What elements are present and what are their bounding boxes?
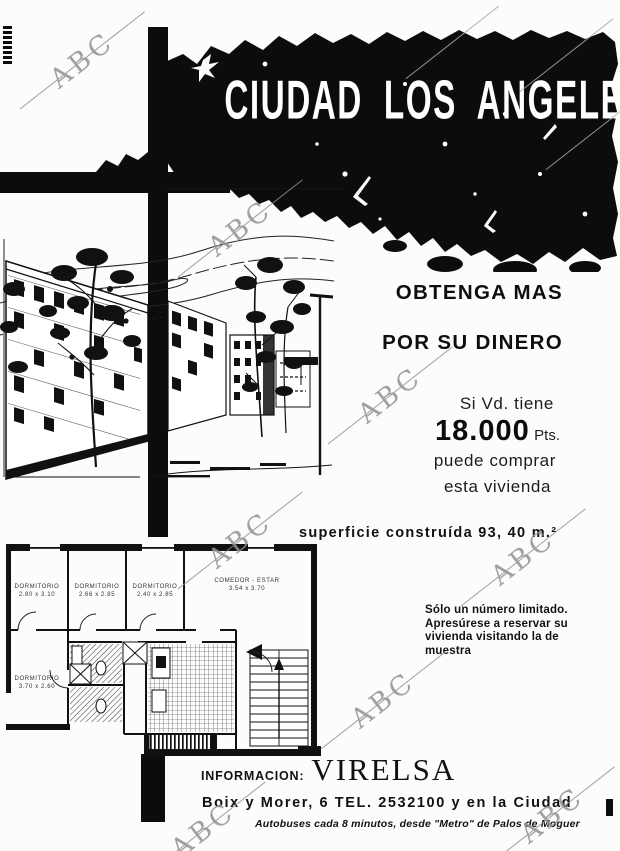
floor-plan: DORMITORIO2.80 x 3.10 DORMITORIO2.66 x 2… bbox=[6, 530, 321, 758]
abc-watermark: ABC bbox=[4, 0, 159, 130]
building-right bbox=[230, 335, 310, 415]
svg-text:COMEDOR - ESTAR: COMEDOR - ESTAR bbox=[214, 578, 279, 584]
company-name: VIRELSA bbox=[311, 752, 456, 788]
pitch-line-2: POR SU DINERO bbox=[382, 331, 563, 355]
terrace-railing bbox=[149, 734, 212, 750]
building-left bbox=[6, 261, 148, 479]
building-middle bbox=[168, 301, 226, 431]
svg-text:DORMITORIO: DORMITORIO bbox=[15, 676, 60, 682]
pitch-line-1: OBTENGA MAS bbox=[396, 281, 563, 305]
edge-mark-bottom-right bbox=[606, 799, 613, 816]
transport-note: Autobuses cada 8 minutos, desde "Metro" … bbox=[255, 818, 580, 830]
sketch-top-rule bbox=[163, 188, 343, 190]
foliage-spill bbox=[88, 146, 150, 194]
limited-offer-note: Sólo un número limitado. Apresúrese a re… bbox=[425, 604, 579, 658]
room-labels: DORMITORIO2.80 x 3.10 DORMITORIO2.66 x 2… bbox=[15, 578, 280, 690]
offer-line-3: esta vivienda bbox=[444, 477, 551, 497]
svg-text:DORMITORIO: DORMITORIO bbox=[15, 584, 60, 590]
surface-area-note: superficie construída 93, 40 m.² bbox=[299, 525, 557, 541]
svg-text:DORMITORIO: DORMITORIO bbox=[133, 584, 178, 590]
svg-text:DORMITORIO: DORMITORIO bbox=[75, 584, 120, 590]
contact-address: Boix y Morer, 6 TEL. 2532100 y en la Ciu… bbox=[202, 795, 572, 811]
price-currency: Pts. bbox=[534, 427, 560, 444]
svg-text:2.66 x 2.85: 2.66 x 2.85 bbox=[79, 592, 115, 598]
staircase bbox=[250, 650, 308, 746]
svg-text:3.54 x 3.70: 3.54 x 3.70 bbox=[229, 586, 265, 592]
edge-mark-top-left bbox=[3, 26, 12, 66]
information-label: INFORMACION: bbox=[201, 769, 304, 783]
offer-price: 18.000 Pts. bbox=[435, 415, 560, 448]
contact-row: INFORMACION: VIRELSA bbox=[201, 752, 456, 788]
advertisement-page: CIUDAD LOS ANGELES bbox=[0, 0, 620, 851]
offer-line-2: puede comprar bbox=[434, 451, 556, 471]
buildings-sketch bbox=[0, 225, 335, 487]
svg-text:2.40 x 2.85: 2.40 x 2.85 bbox=[137, 592, 173, 598]
offer-intro: Si Vd. tiene bbox=[460, 394, 554, 414]
svg-text:2.80 x 3.10: 2.80 x 3.10 bbox=[19, 592, 55, 598]
price-amount: 18.000 bbox=[435, 415, 530, 447]
svg-text:3.70 x 2.60: 3.70 x 2.60 bbox=[19, 684, 55, 690]
cross-vertical-bar-lower bbox=[141, 754, 165, 822]
headline-title: CIUDAD LOS ANGELES bbox=[150, 74, 620, 126]
